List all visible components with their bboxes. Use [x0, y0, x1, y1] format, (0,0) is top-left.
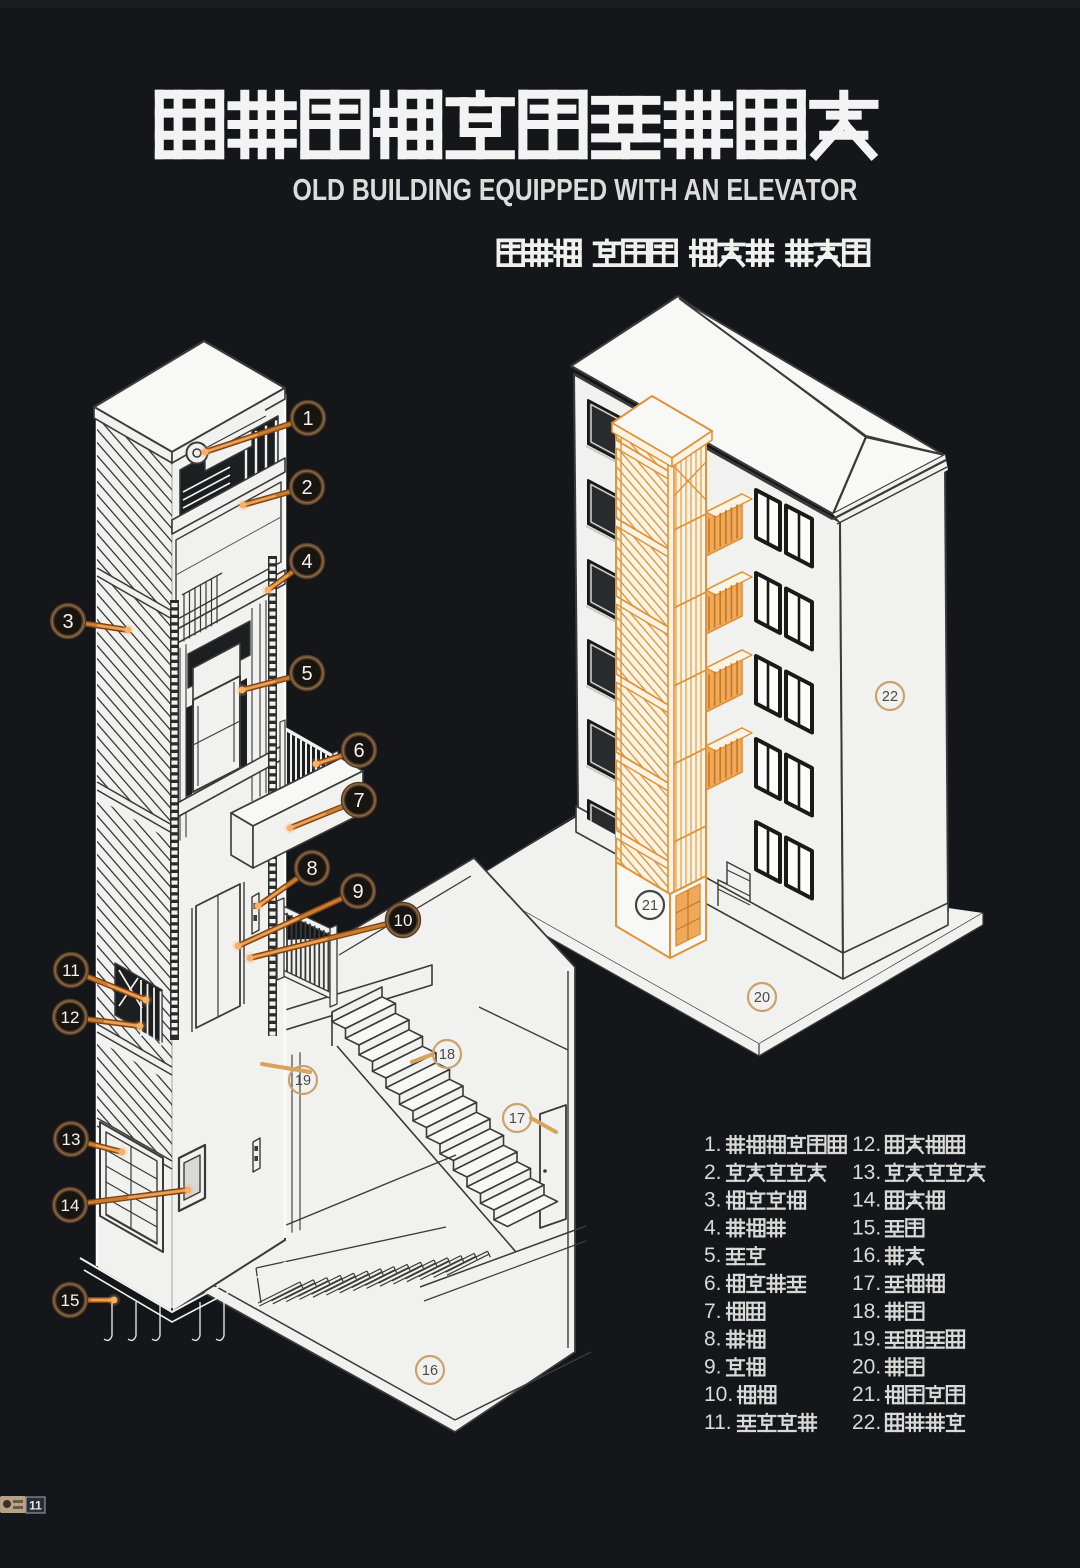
svg-text:20.: 20. [852, 1355, 881, 1378]
svg-text:15.: 15. [852, 1216, 881, 1239]
svg-text:14.: 14. [852, 1189, 881, 1212]
svg-text:21.: 21. [852, 1383, 881, 1406]
svg-text:3: 3 [62, 611, 73, 633]
svg-text:10.: 10. [704, 1383, 733, 1406]
svg-text:8: 8 [306, 858, 317, 880]
svg-text:7.: 7. [704, 1300, 722, 1323]
svg-text:8.: 8. [704, 1328, 722, 1351]
svg-text:11.: 11. [704, 1411, 732, 1434]
svg-text:19.: 19. [852, 1328, 881, 1351]
svg-text:14: 14 [61, 1196, 80, 1215]
svg-text:17.: 17. [852, 1272, 881, 1295]
svg-text:4.: 4. [704, 1216, 722, 1239]
svg-text:5: 5 [301, 663, 312, 685]
svg-text:12.: 12. [852, 1133, 881, 1156]
svg-text:2.: 2. [704, 1161, 722, 1184]
svg-text:19: 19 [295, 1073, 311, 1089]
svg-text:18.: 18. [852, 1300, 881, 1323]
svg-text:21: 21 [642, 898, 658, 914]
svg-text:13: 13 [62, 1130, 81, 1149]
svg-text:22.: 22. [852, 1411, 881, 1434]
svg-text:1: 1 [302, 408, 313, 430]
svg-text:11: 11 [29, 1499, 42, 1513]
svg-text:16.: 16. [852, 1244, 881, 1267]
svg-text:9.: 9. [704, 1355, 722, 1378]
svg-text:1.: 1. [704, 1133, 722, 1156]
svg-text:17: 17 [509, 1111, 525, 1127]
svg-text:6.: 6. [704, 1272, 722, 1295]
svg-text:16: 16 [422, 1363, 438, 1379]
svg-text:3.: 3. [704, 1189, 722, 1212]
svg-text:4: 4 [301, 551, 312, 573]
svg-text:18: 18 [439, 1047, 455, 1063]
svg-text:13.: 13. [852, 1161, 881, 1184]
svg-text:2: 2 [301, 477, 312, 499]
svg-text:6: 6 [353, 740, 364, 762]
svg-text:9: 9 [352, 881, 363, 903]
svg-text:22: 22 [882, 689, 898, 705]
svg-text:5.: 5. [704, 1244, 722, 1267]
svg-text:OLD BUILDING EQUIPPED WITH AN: OLD BUILDING EQUIPPED WITH AN ELEVATOR [293, 172, 858, 207]
svg-text:10: 10 [394, 911, 413, 930]
svg-text:12: 12 [61, 1008, 80, 1027]
svg-text:7: 7 [353, 790, 364, 812]
svg-text:11: 11 [62, 961, 80, 980]
svg-text:15: 15 [61, 1291, 80, 1310]
svg-text:20: 20 [754, 990, 770, 1006]
